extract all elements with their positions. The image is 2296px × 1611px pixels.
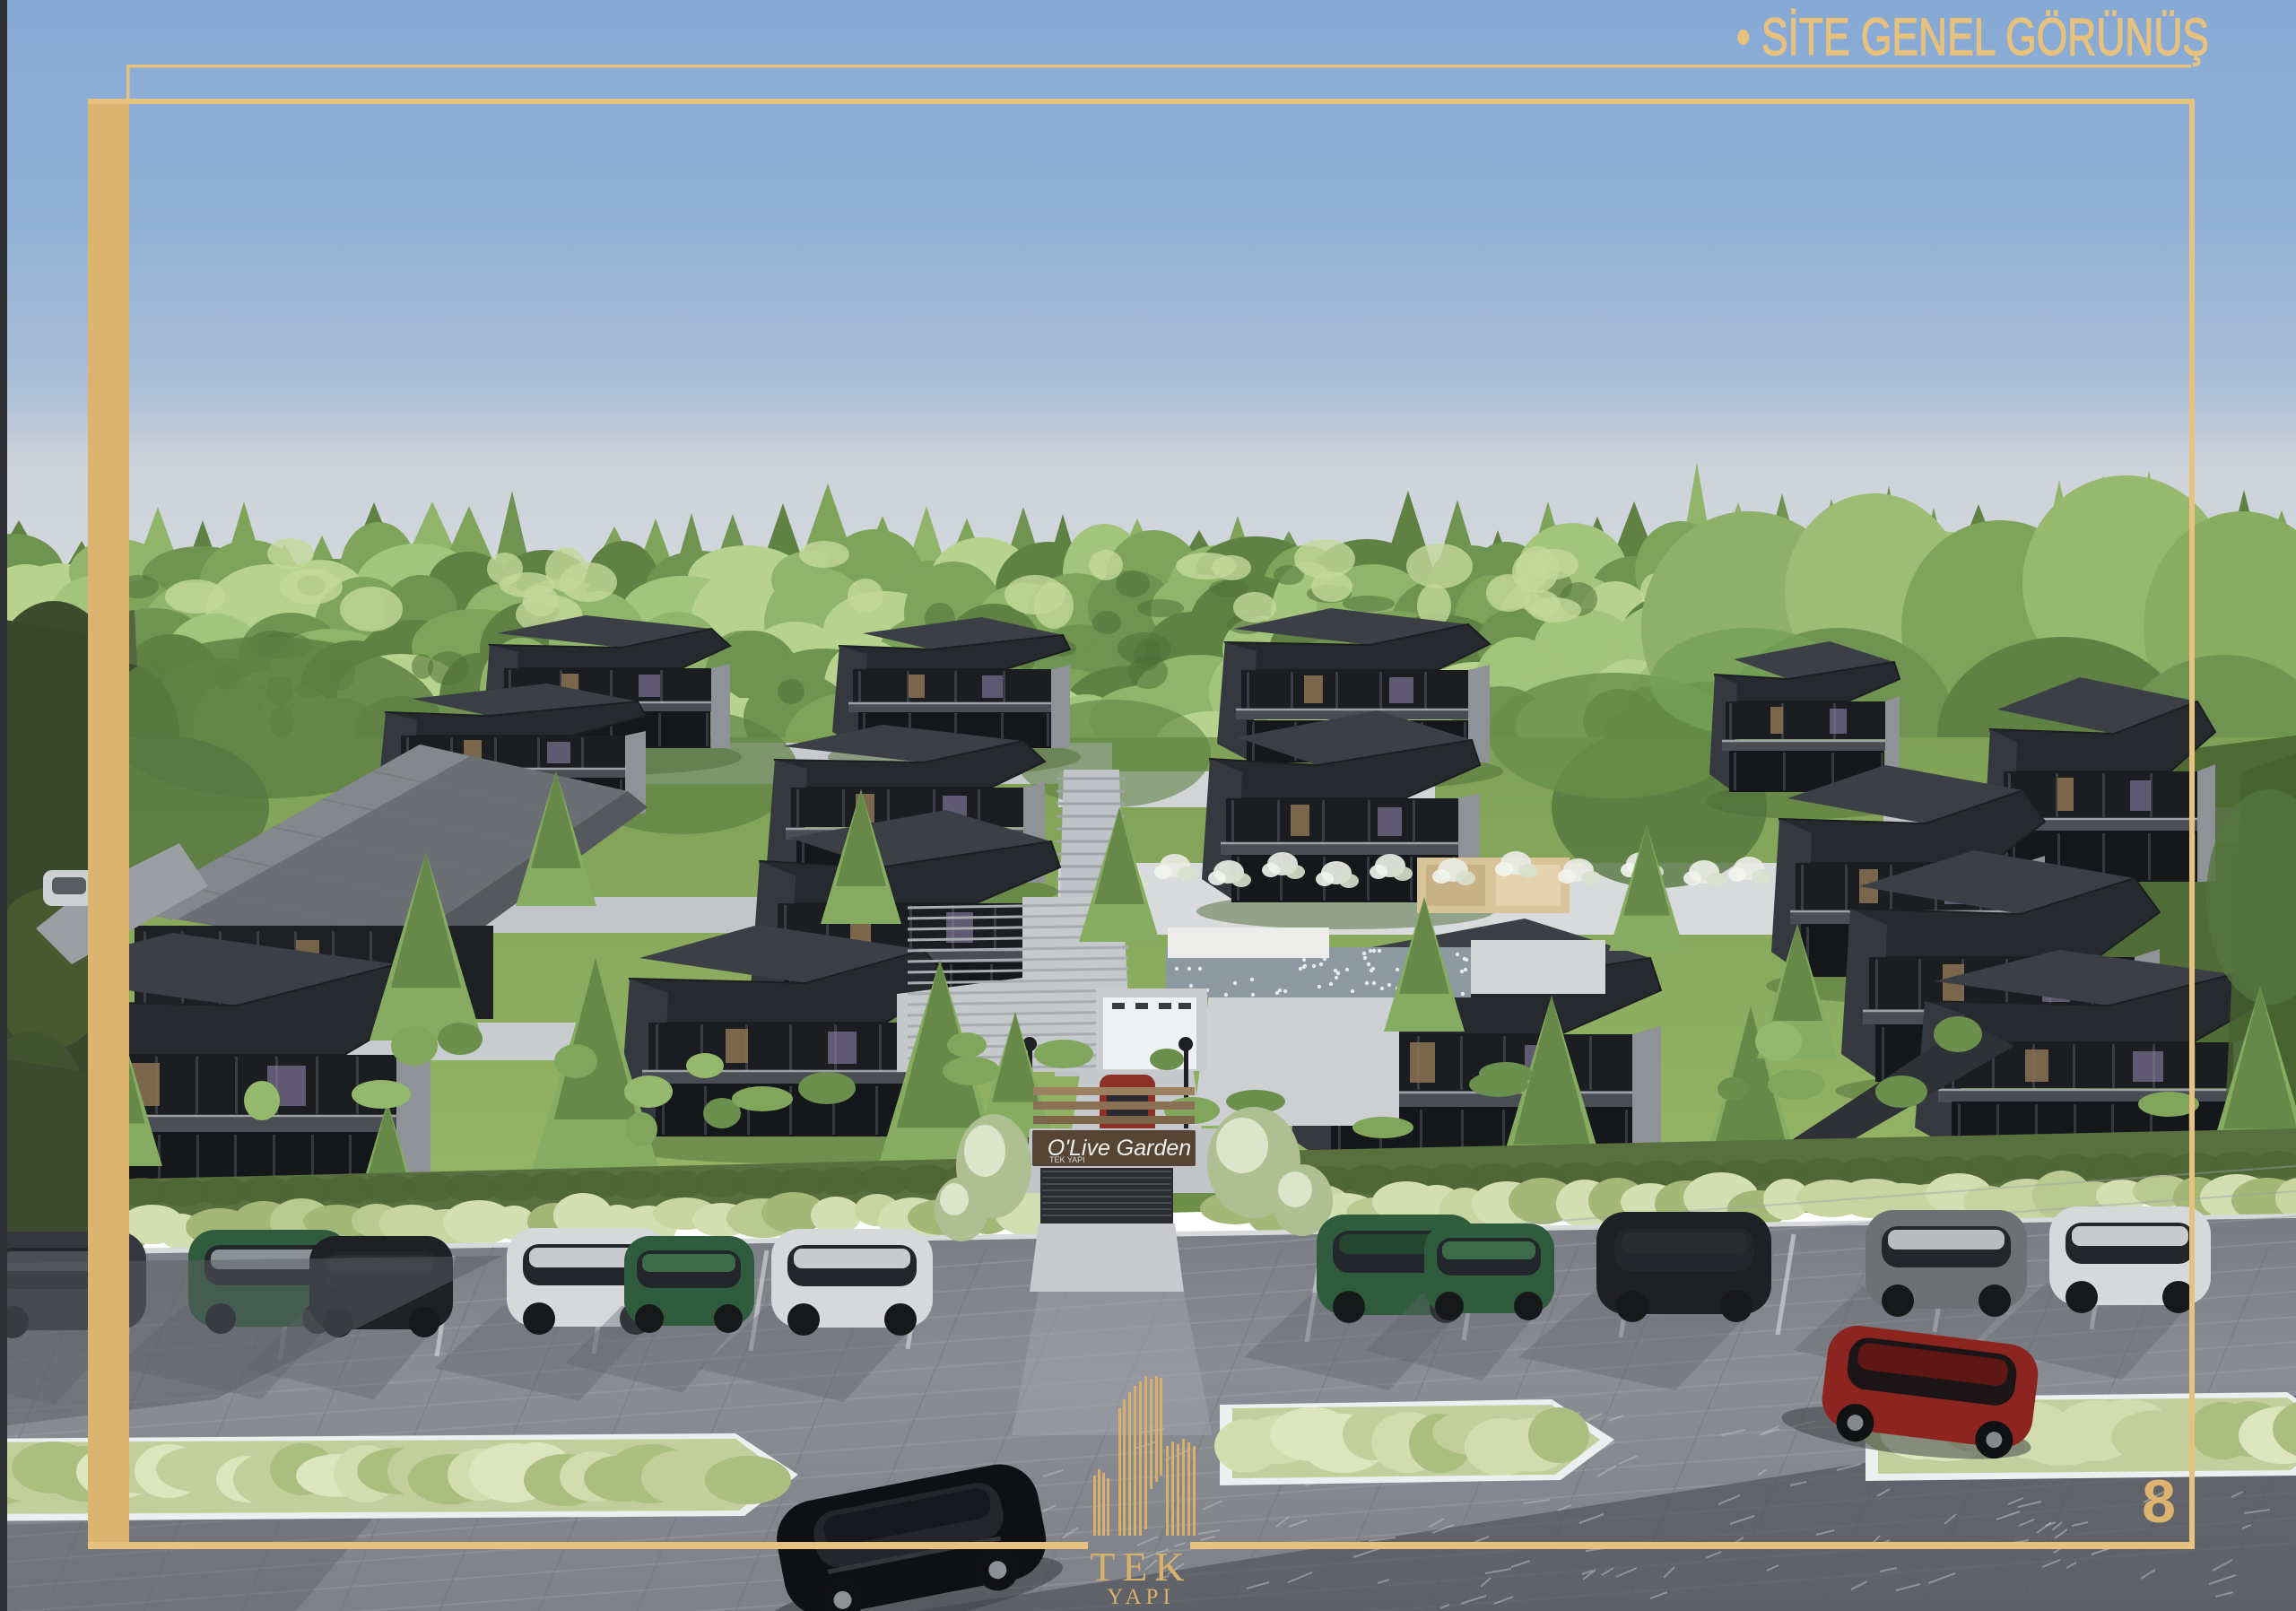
svg-text:TEK YAPI: TEK YAPI: [1049, 1155, 1085, 1164]
svg-text:• SİTE GENEL GÖRÜNÜŞ: • SİTE GENEL GÖRÜNÜŞ: [1736, 8, 2209, 66]
svg-text:YAPI: YAPI: [1107, 1585, 1175, 1609]
svg-text:TEK: TEK: [1090, 1544, 1191, 1589]
svg-text:8: 8: [2142, 1467, 2176, 1536]
